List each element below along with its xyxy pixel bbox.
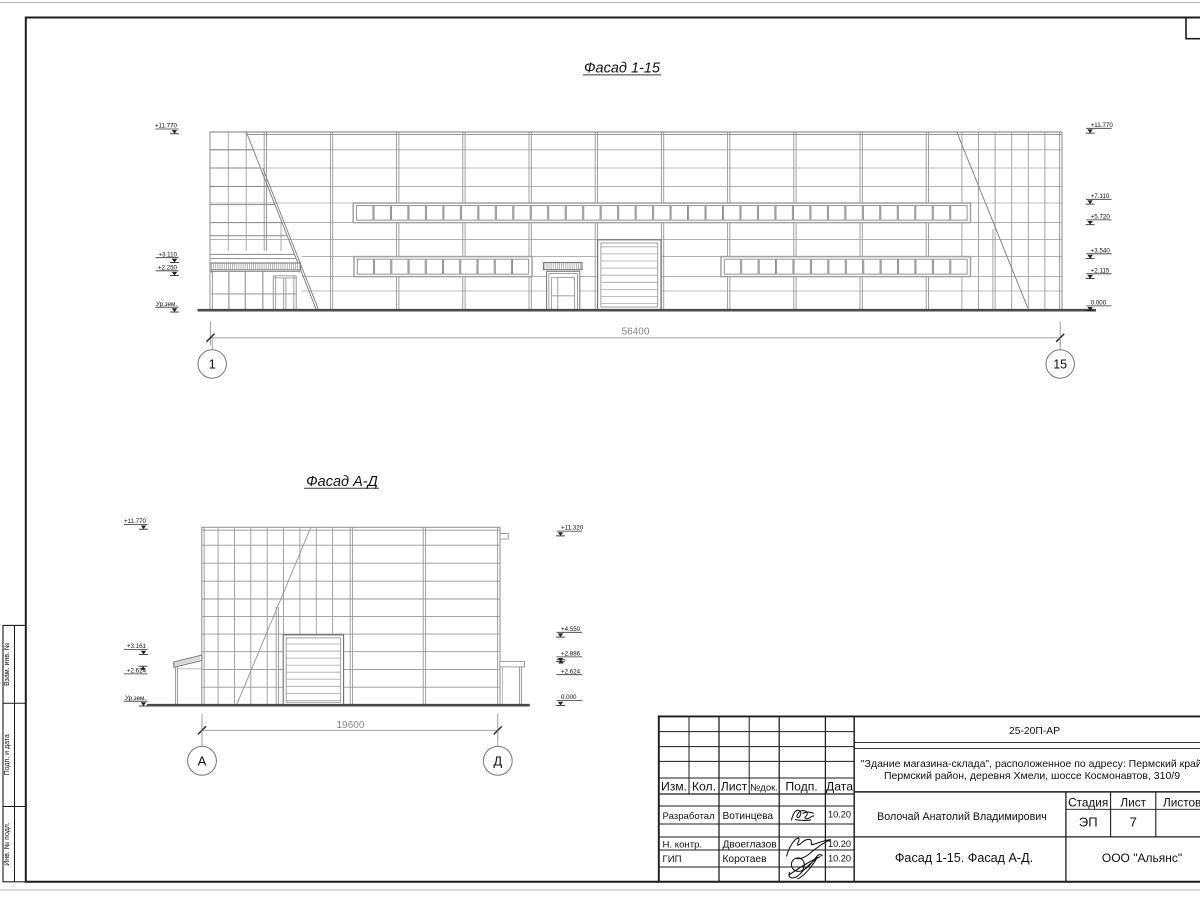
svg-text:15: 15 <box>1053 358 1067 372</box>
svg-text:56400: 56400 <box>622 327 650 338</box>
svg-text:Н. контр.: Н. контр. <box>663 840 703 851</box>
svg-text:0.000: 0.000 <box>1091 300 1107 307</box>
svg-text:25-20П-АР: 25-20П-АР <box>1009 726 1060 737</box>
svg-text:1: 1 <box>209 357 216 372</box>
svg-text:+11.320: +11.320 <box>561 525 584 532</box>
svg-text:+3.110: +3.110 <box>158 251 177 258</box>
svg-text:А: А <box>198 754 207 769</box>
svg-text:Пермский район, деревня Хмели,: Пермский район, деревня Хмели, шоссе Кос… <box>884 770 1180 782</box>
svg-text:Инв. № подл.: Инв. № подл. <box>4 822 11 866</box>
svg-text:0.000: 0.000 <box>561 694 577 701</box>
svg-text:"Здание магазина-склада", расп: "Здание магазина-склада", расположенное … <box>861 758 1200 770</box>
svg-text:+2.624: +2.624 <box>561 668 581 675</box>
svg-text:Разработал: Разработал <box>663 811 715 822</box>
svg-text:Кол.: Кол. <box>692 779 716 793</box>
svg-text:19600: 19600 <box>337 720 365 731</box>
svg-text:Подп.: Подп. <box>785 779 817 793</box>
svg-text:ЭП: ЭП <box>1079 815 1098 830</box>
svg-text:Листов: Листов <box>1163 796 1200 810</box>
svg-text:10.20: 10.20 <box>828 854 851 864</box>
svg-text:Дата: Дата <box>826 779 853 793</box>
svg-text:+7.110: +7.110 <box>1091 193 1110 200</box>
svg-text:Ур.зем.: Ур.зем. <box>156 301 177 308</box>
svg-text:Коротаев: Коротаев <box>723 854 767 865</box>
svg-text:10.20: 10.20 <box>828 810 851 820</box>
svg-text:Подп. и дата: Подп. и дата <box>4 734 11 775</box>
svg-text:+5.720: +5.720 <box>1091 214 1111 221</box>
svg-text:+2.250: +2.250 <box>158 264 178 271</box>
svg-text:Фасад 1-15: Фасад 1-15 <box>584 61 661 77</box>
svg-text:№док.: №док. <box>750 783 778 794</box>
svg-text:Лист: Лист <box>721 779 748 793</box>
svg-text:+11.770: +11.770 <box>1091 122 1114 129</box>
svg-text:Двоеглазов: Двоеглазов <box>723 840 777 851</box>
svg-text:Д: Д <box>493 754 502 769</box>
svg-text:Лист: Лист <box>1120 796 1146 810</box>
svg-text:+2.115: +2.115 <box>1091 267 1110 274</box>
svg-text:Взам. инв. №: Взам. инв. № <box>4 643 11 686</box>
svg-text:+3.161: +3.161 <box>127 643 147 650</box>
svg-text:Ур.зем.: Ур.зем. <box>125 695 146 702</box>
svg-text:Волочай Анатолий Владимирович: Волочай Анатолий Владимирович <box>877 811 1047 823</box>
svg-text:+11.770: +11.770 <box>124 518 147 525</box>
svg-text:Фасад А-Д: Фасад А-Д <box>306 474 378 490</box>
svg-text:7: 7 <box>1130 815 1137 830</box>
svg-text:+4.550: +4.550 <box>561 626 581 633</box>
svg-text:ГИП: ГИП <box>663 854 682 865</box>
svg-text:+11.770: +11.770 <box>155 123 178 130</box>
svg-text:10.20: 10.20 <box>828 839 851 849</box>
svg-text:+3.540: +3.540 <box>1091 247 1111 254</box>
svg-text:Стадия: Стадия <box>1068 796 1108 810</box>
svg-text:Фасад 1-15. Фасад А-Д.: Фасад 1-15. Фасад А-Д. <box>895 851 1033 865</box>
svg-text:Изм.: Изм. <box>661 779 687 793</box>
svg-text:+2.886: +2.886 <box>561 651 581 658</box>
svg-text:ООО "Альянс": ООО "Альянс" <box>1102 851 1182 865</box>
svg-text:Вотинцева: Вотинцева <box>723 811 774 822</box>
